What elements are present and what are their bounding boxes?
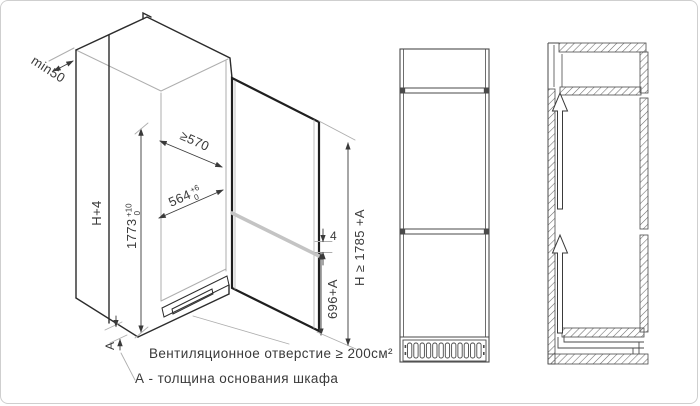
door-panel [232,78,319,331]
dimension-freezer-door-height: 696+A [321,253,340,335]
air-inlet-path [558,335,644,354]
dim-door-gap-label: 4 [330,229,337,243]
door-divider-bottom [400,229,489,234]
fridge-outline [400,49,489,362]
dim-rear-gap-label: min50 [29,53,69,86]
plinth [162,276,229,317]
dim-cabinet-height-label: H+4 [89,200,104,225]
leader-line [193,316,289,344]
diagram-canvas: min50 H+4 1773+100 ≥570 564+60 [1,1,698,404]
door-divider-top [400,88,489,93]
note-ventilation: Вентиляционное отверстие ≥ 200см² [149,346,393,361]
note-base-thickness: А - толщина основания шкафа [135,371,338,386]
installation-diagram: min50 H+4 1773+100 ≥570 564+60 [0,0,698,404]
dim-niche-width-label: 564+60 [166,182,204,212]
dim-base-thickness-label: A [103,342,117,350]
dimension-niche-width: 564+60 [159,182,223,218]
leader-line [121,353,135,380]
dimension-niche-height: 1773+100 [124,123,148,338]
side-section-view [548,43,648,364]
dimension-rear-gap: min50 [29,53,73,86]
dim-niche-depth-label: ≥570 [178,128,212,154]
dim-overall-height-label: H ≥ 1785 +A [352,209,367,286]
dimension-niche-depth: ≥570 [160,128,222,167]
isometric-view: min50 H+4 1773+100 ≥570 564+60 [29,13,367,380]
ventilation-grille [403,340,486,361]
dim-niche-height-label: 1773+100 [124,203,142,249]
front-view [400,49,489,362]
dim-freezer-door-height-label: 696+A [325,279,340,319]
